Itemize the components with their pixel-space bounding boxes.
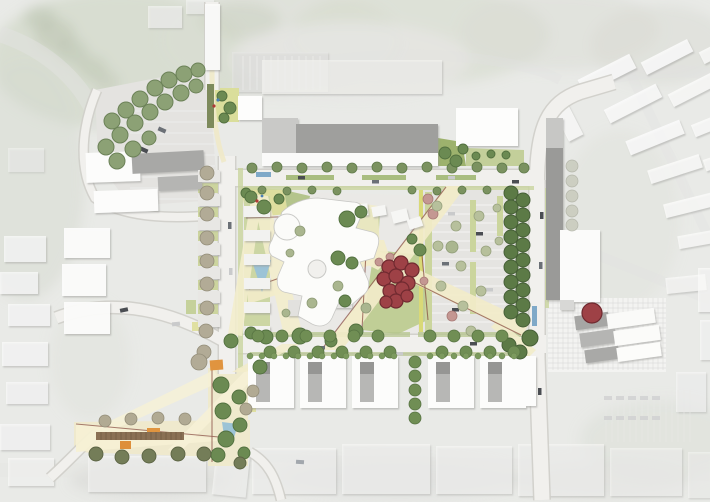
site-plan-canvas	[0, 0, 710, 502]
hedge-row-trees	[247, 353, 517, 359]
east-pale-tree-column	[566, 160, 578, 231]
site-plan-svg	[0, 0, 710, 502]
